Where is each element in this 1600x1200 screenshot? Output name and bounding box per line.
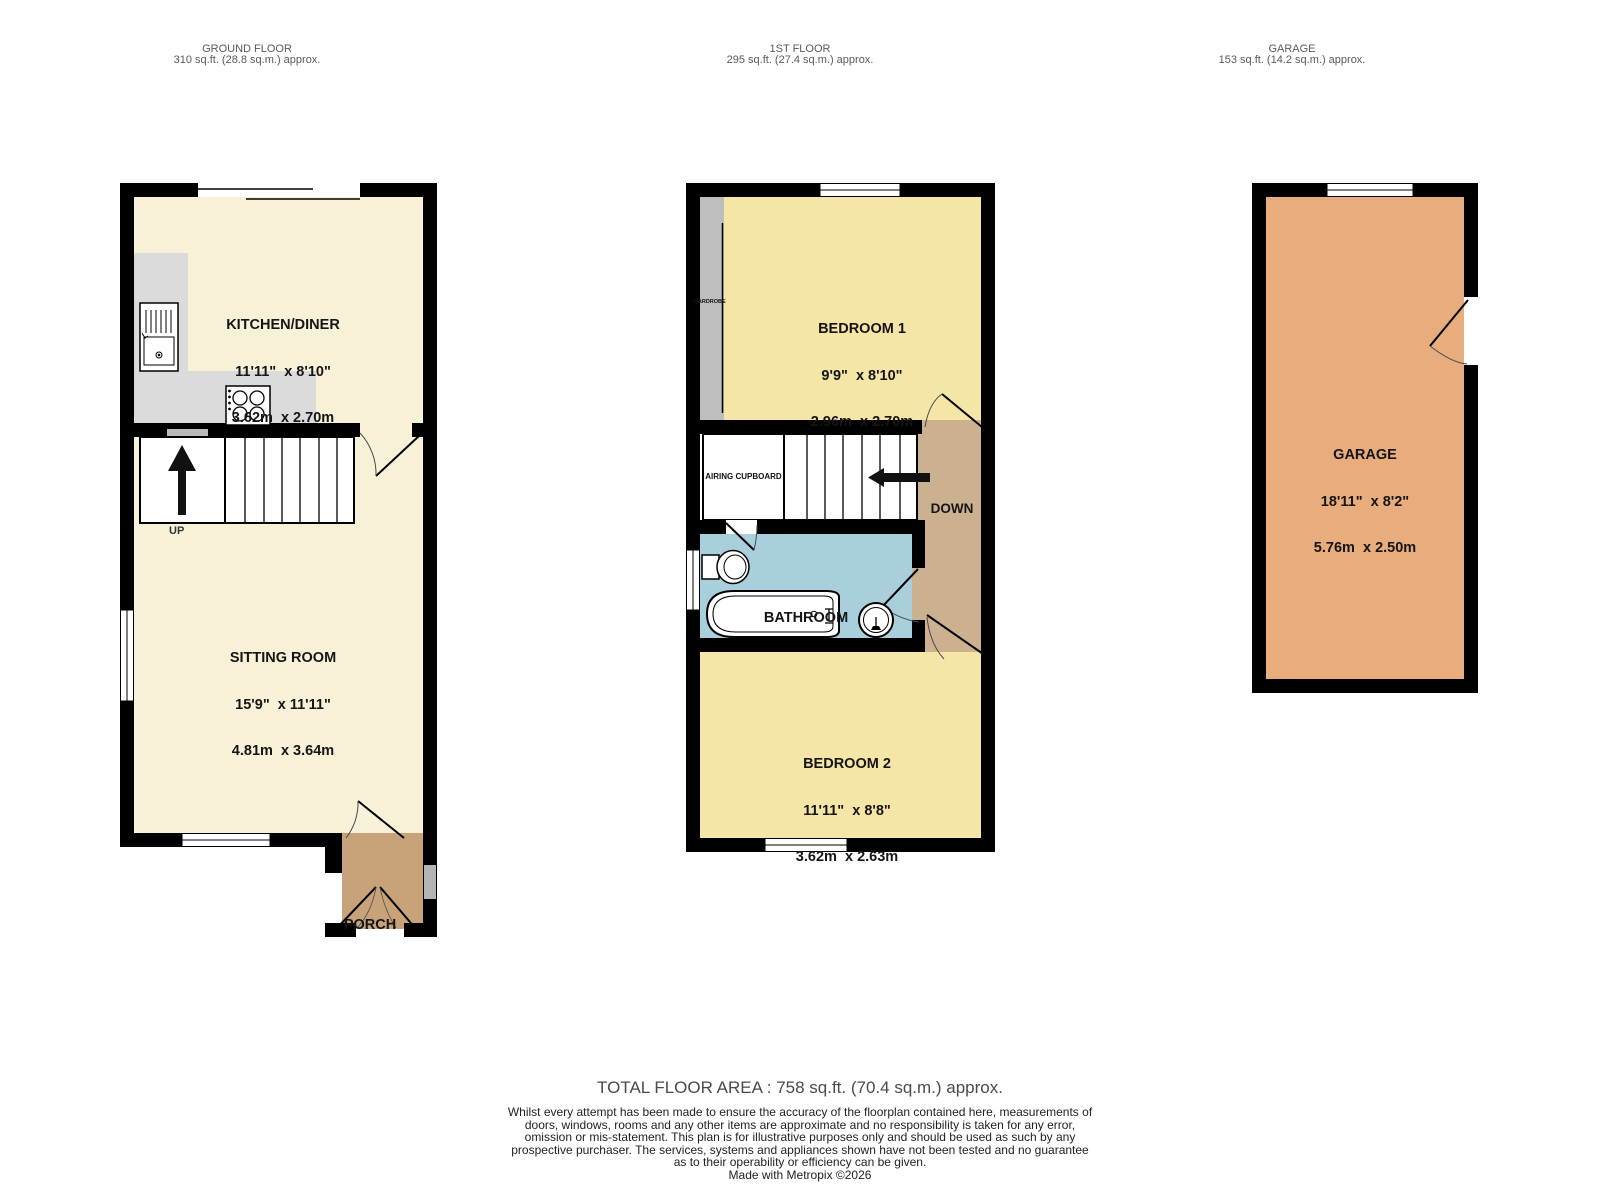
toilet-icon xyxy=(702,551,749,584)
bedroom2-label: BEDROOM 2 11'11" x 8'8" 3.62m x 2.63m xyxy=(796,726,898,897)
ground-floor-header: GROUND FLOOR 310 sq.ft. (28.8 sq.m.) app… xyxy=(87,44,407,66)
first-floor-header: 1ST FLOOR 295 sq.ft. (27.4 sq.m.) approx… xyxy=(640,44,960,66)
sitting-room-bottom-window xyxy=(182,834,270,847)
up-label: UP xyxy=(169,525,184,537)
ground-floor-area: 310 sq.ft. (28.8 sq.m.) approx. xyxy=(87,55,407,66)
footer: TOTAL FLOOR AREA : 758 sq.ft. (70.4 sq.m… xyxy=(0,1078,1600,1182)
sitting-room-left-window xyxy=(121,610,134,701)
down-label: DOWN xyxy=(931,470,974,548)
wash-basin-icon xyxy=(859,603,893,637)
metropix-credit: Made with Metropix ©2026 xyxy=(0,1169,1600,1182)
garage-header: GARAGE 153 sq.ft. (14.2 sq.m.) approx. xyxy=(1132,44,1452,66)
porch-window xyxy=(424,865,436,899)
bedroom1-label: BEDROOM 1 9'9" x 8'10" 2.96m x 2.70m xyxy=(811,291,913,462)
bathroom-window xyxy=(687,550,700,610)
first-floor-plan: BEDROOM 1 9'9" x 8'10" 2.96m x 2.70m BED… xyxy=(686,183,995,852)
bathroom-label: BATHROOM xyxy=(764,580,848,658)
bedroom1-window xyxy=(820,184,900,197)
disclaimer-text: Whilst every attempt has been made to en… xyxy=(504,1106,1096,1169)
kitchen-sink-icon xyxy=(140,303,178,371)
garage-label: GARAGE 18'11" x 8'2" 5.76m x 2.50m xyxy=(1314,417,1416,588)
wardrobe xyxy=(700,197,724,420)
garage-plan: GARAGE 18'11" x 8'2" 5.76m x 2.50m xyxy=(1252,183,1478,693)
sitting-room-label: SITTING ROOM 15'9" x 11'11" 4.81m x 3.64… xyxy=(230,620,336,791)
ground-floor-plan: KITCHEN/DINER 11'11" x 8'10" 3.62m x 2.7… xyxy=(120,183,437,939)
airing-cupboard-label: AIRING CUPBOARD xyxy=(702,472,785,481)
porch-label: PORCH xyxy=(344,887,396,965)
garage-area: 153 sq.ft. (14.2 sq.m.) approx. xyxy=(1132,55,1452,66)
first-floor-area: 295 sq.ft. (27.4 sq.m.) approx. xyxy=(640,55,960,66)
total-floor-area: TOTAL FLOOR AREA : 758 sq.ft. (70.4 sq.m… xyxy=(0,1078,1600,1098)
garage-window xyxy=(1327,184,1413,197)
wardrobe-label: WARDROBE xyxy=(693,299,726,305)
kitchen-label: KITCHEN/DINER 11'11" x 8'10" 3.62m x 2.7… xyxy=(226,287,340,458)
